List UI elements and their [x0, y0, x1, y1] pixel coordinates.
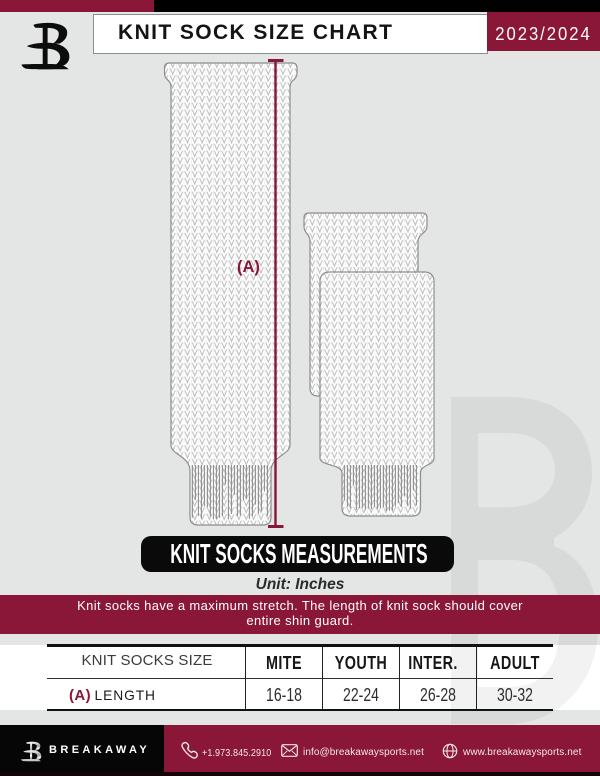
svg-text:(A): (A) — [237, 258, 260, 276]
